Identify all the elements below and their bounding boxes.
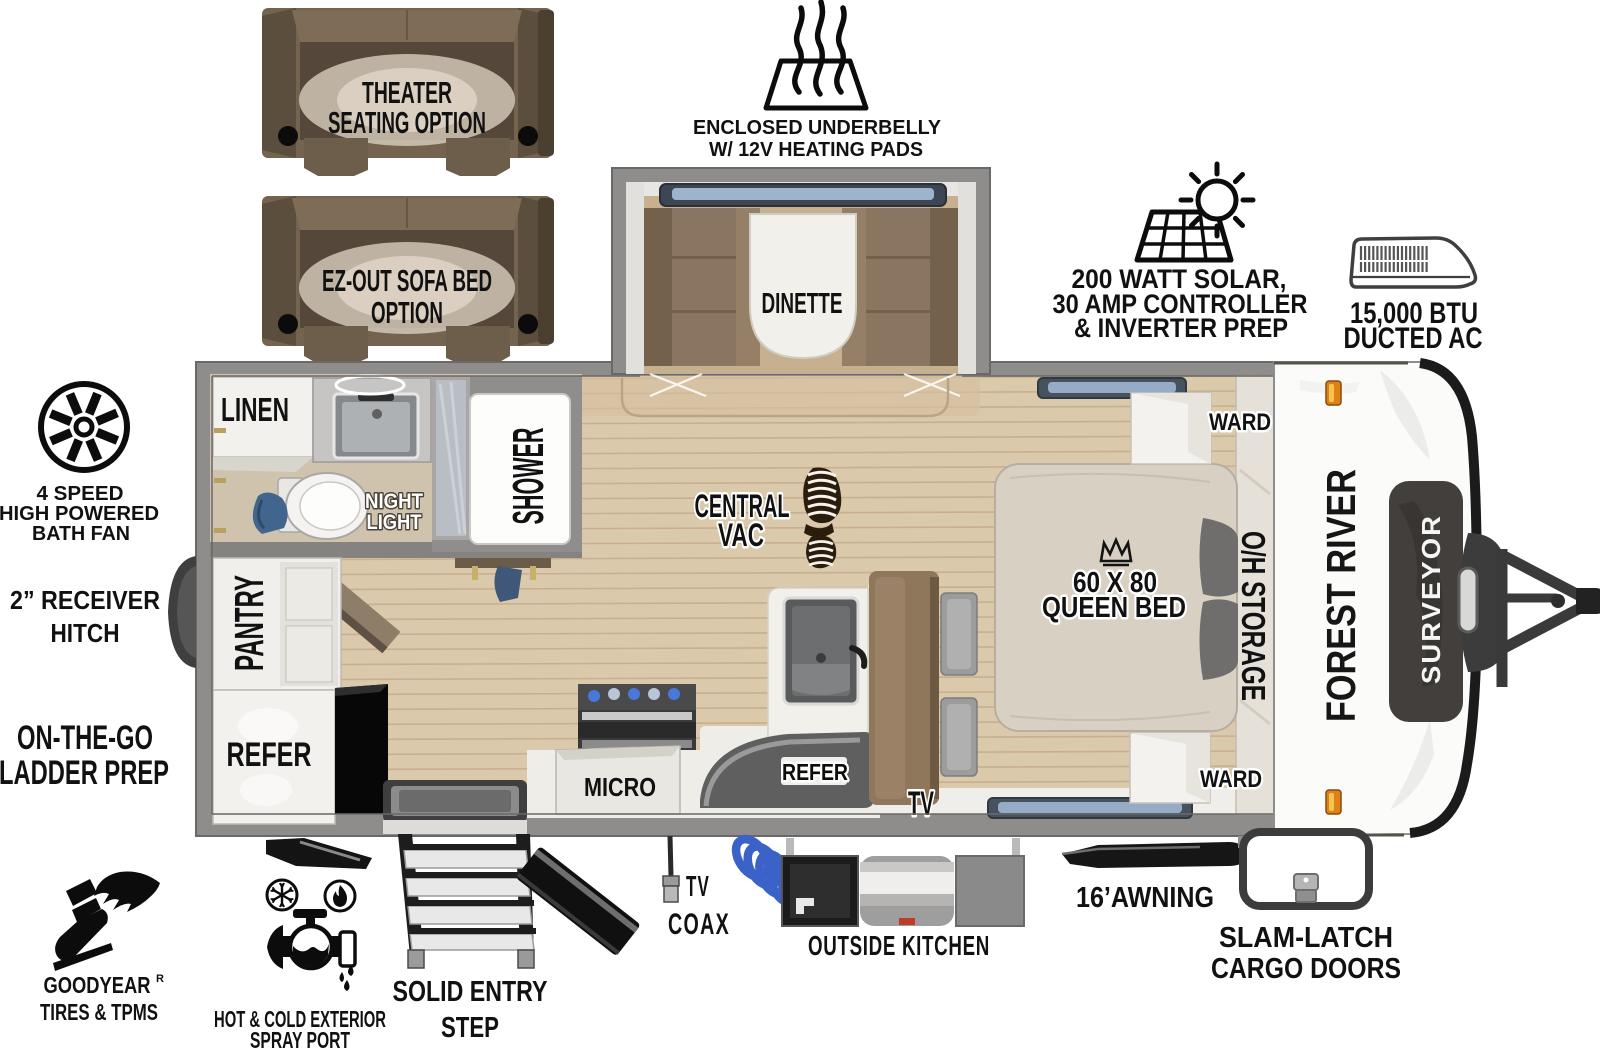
svg-text:ENCLOSED UNDERBELLY: ENCLOSED UNDERBELLY: [693, 117, 942, 139]
svg-text:& INVERTER PREP: & INVERTER PREP: [1074, 313, 1288, 343]
svg-text:ON-THE-GO: ON-THE-GO: [17, 719, 153, 757]
svg-text:SHOWER: SHOWER: [504, 428, 553, 525]
svg-text:W/ 12V HEATING PADS: W/ 12V HEATING PADS: [709, 139, 923, 161]
svg-text:BATH FAN: BATH FAN: [32, 523, 130, 545]
svg-text:SOLID ENTRY: SOLID ENTRY: [393, 976, 548, 1008]
svg-text:LADDER PREP: LADDER PREP: [0, 754, 169, 792]
svg-text:PANTRY: PANTRY: [226, 575, 272, 671]
svg-text:SURVEYOR: SURVEYOR: [1416, 514, 1446, 684]
svg-text:STEP: STEP: [441, 1012, 499, 1044]
svg-text:REFER: REFER: [782, 759, 848, 785]
svg-text:16’AWNING: 16’AWNING: [1076, 882, 1214, 914]
svg-text:LIGHT: LIGHT: [367, 511, 422, 534]
svg-text:DUCTED AC: DUCTED AC: [1344, 322, 1483, 355]
svg-text:COAX: COAX: [668, 908, 730, 941]
svg-text:HIGH POWERED: HIGH POWERED: [0, 503, 159, 525]
svg-text:SPRAY PORT: SPRAY PORT: [250, 1027, 350, 1048]
svg-text:WARD: WARD: [1200, 766, 1262, 793]
svg-text:OPTION: OPTION: [371, 295, 443, 330]
svg-text:HITCH: HITCH: [51, 618, 120, 648]
svg-text:QUEEN BED: QUEEN BED: [1042, 592, 1186, 624]
svg-text:REFER: REFER: [227, 736, 312, 774]
svg-text:EZ-OUT SOFA BED: EZ-OUT SOFA BED: [322, 263, 492, 298]
svg-text:R: R: [156, 973, 164, 985]
svg-text:FOREST RIVER: FOREST RIVER: [1318, 469, 1364, 722]
svg-text:CARGO DOORS: CARGO DOORS: [1211, 953, 1401, 985]
svg-text:OUTSIDE KITCHEN: OUTSIDE KITCHEN: [808, 930, 990, 961]
svg-text:2” RECEIVER: 2” RECEIVER: [10, 585, 160, 615]
svg-text:WARD: WARD: [1209, 409, 1271, 436]
svg-text:SLAM-LATCH: SLAM-LATCH: [1219, 922, 1393, 954]
svg-text:4 SPEED: 4 SPEED: [37, 483, 124, 505]
svg-text:MICRO: MICRO: [584, 772, 656, 802]
svg-text:DINETTE: DINETTE: [762, 288, 843, 320]
svg-text:O/H STORAGE: O/H STORAGE: [1235, 531, 1272, 701]
svg-text:TV: TV: [686, 871, 710, 903]
svg-text:TIRES & TPMS: TIRES & TPMS: [40, 999, 158, 1025]
svg-text:SEATING OPTION: SEATING OPTION: [328, 105, 486, 140]
svg-text:LINEN: LINEN: [221, 391, 289, 428]
svg-text:GOODYEAR: GOODYEAR: [44, 972, 151, 998]
svg-text:NIGHT: NIGHT: [365, 490, 423, 513]
svg-text:TV: TV: [908, 785, 934, 823]
svg-text:VAC: VAC: [718, 517, 764, 553]
